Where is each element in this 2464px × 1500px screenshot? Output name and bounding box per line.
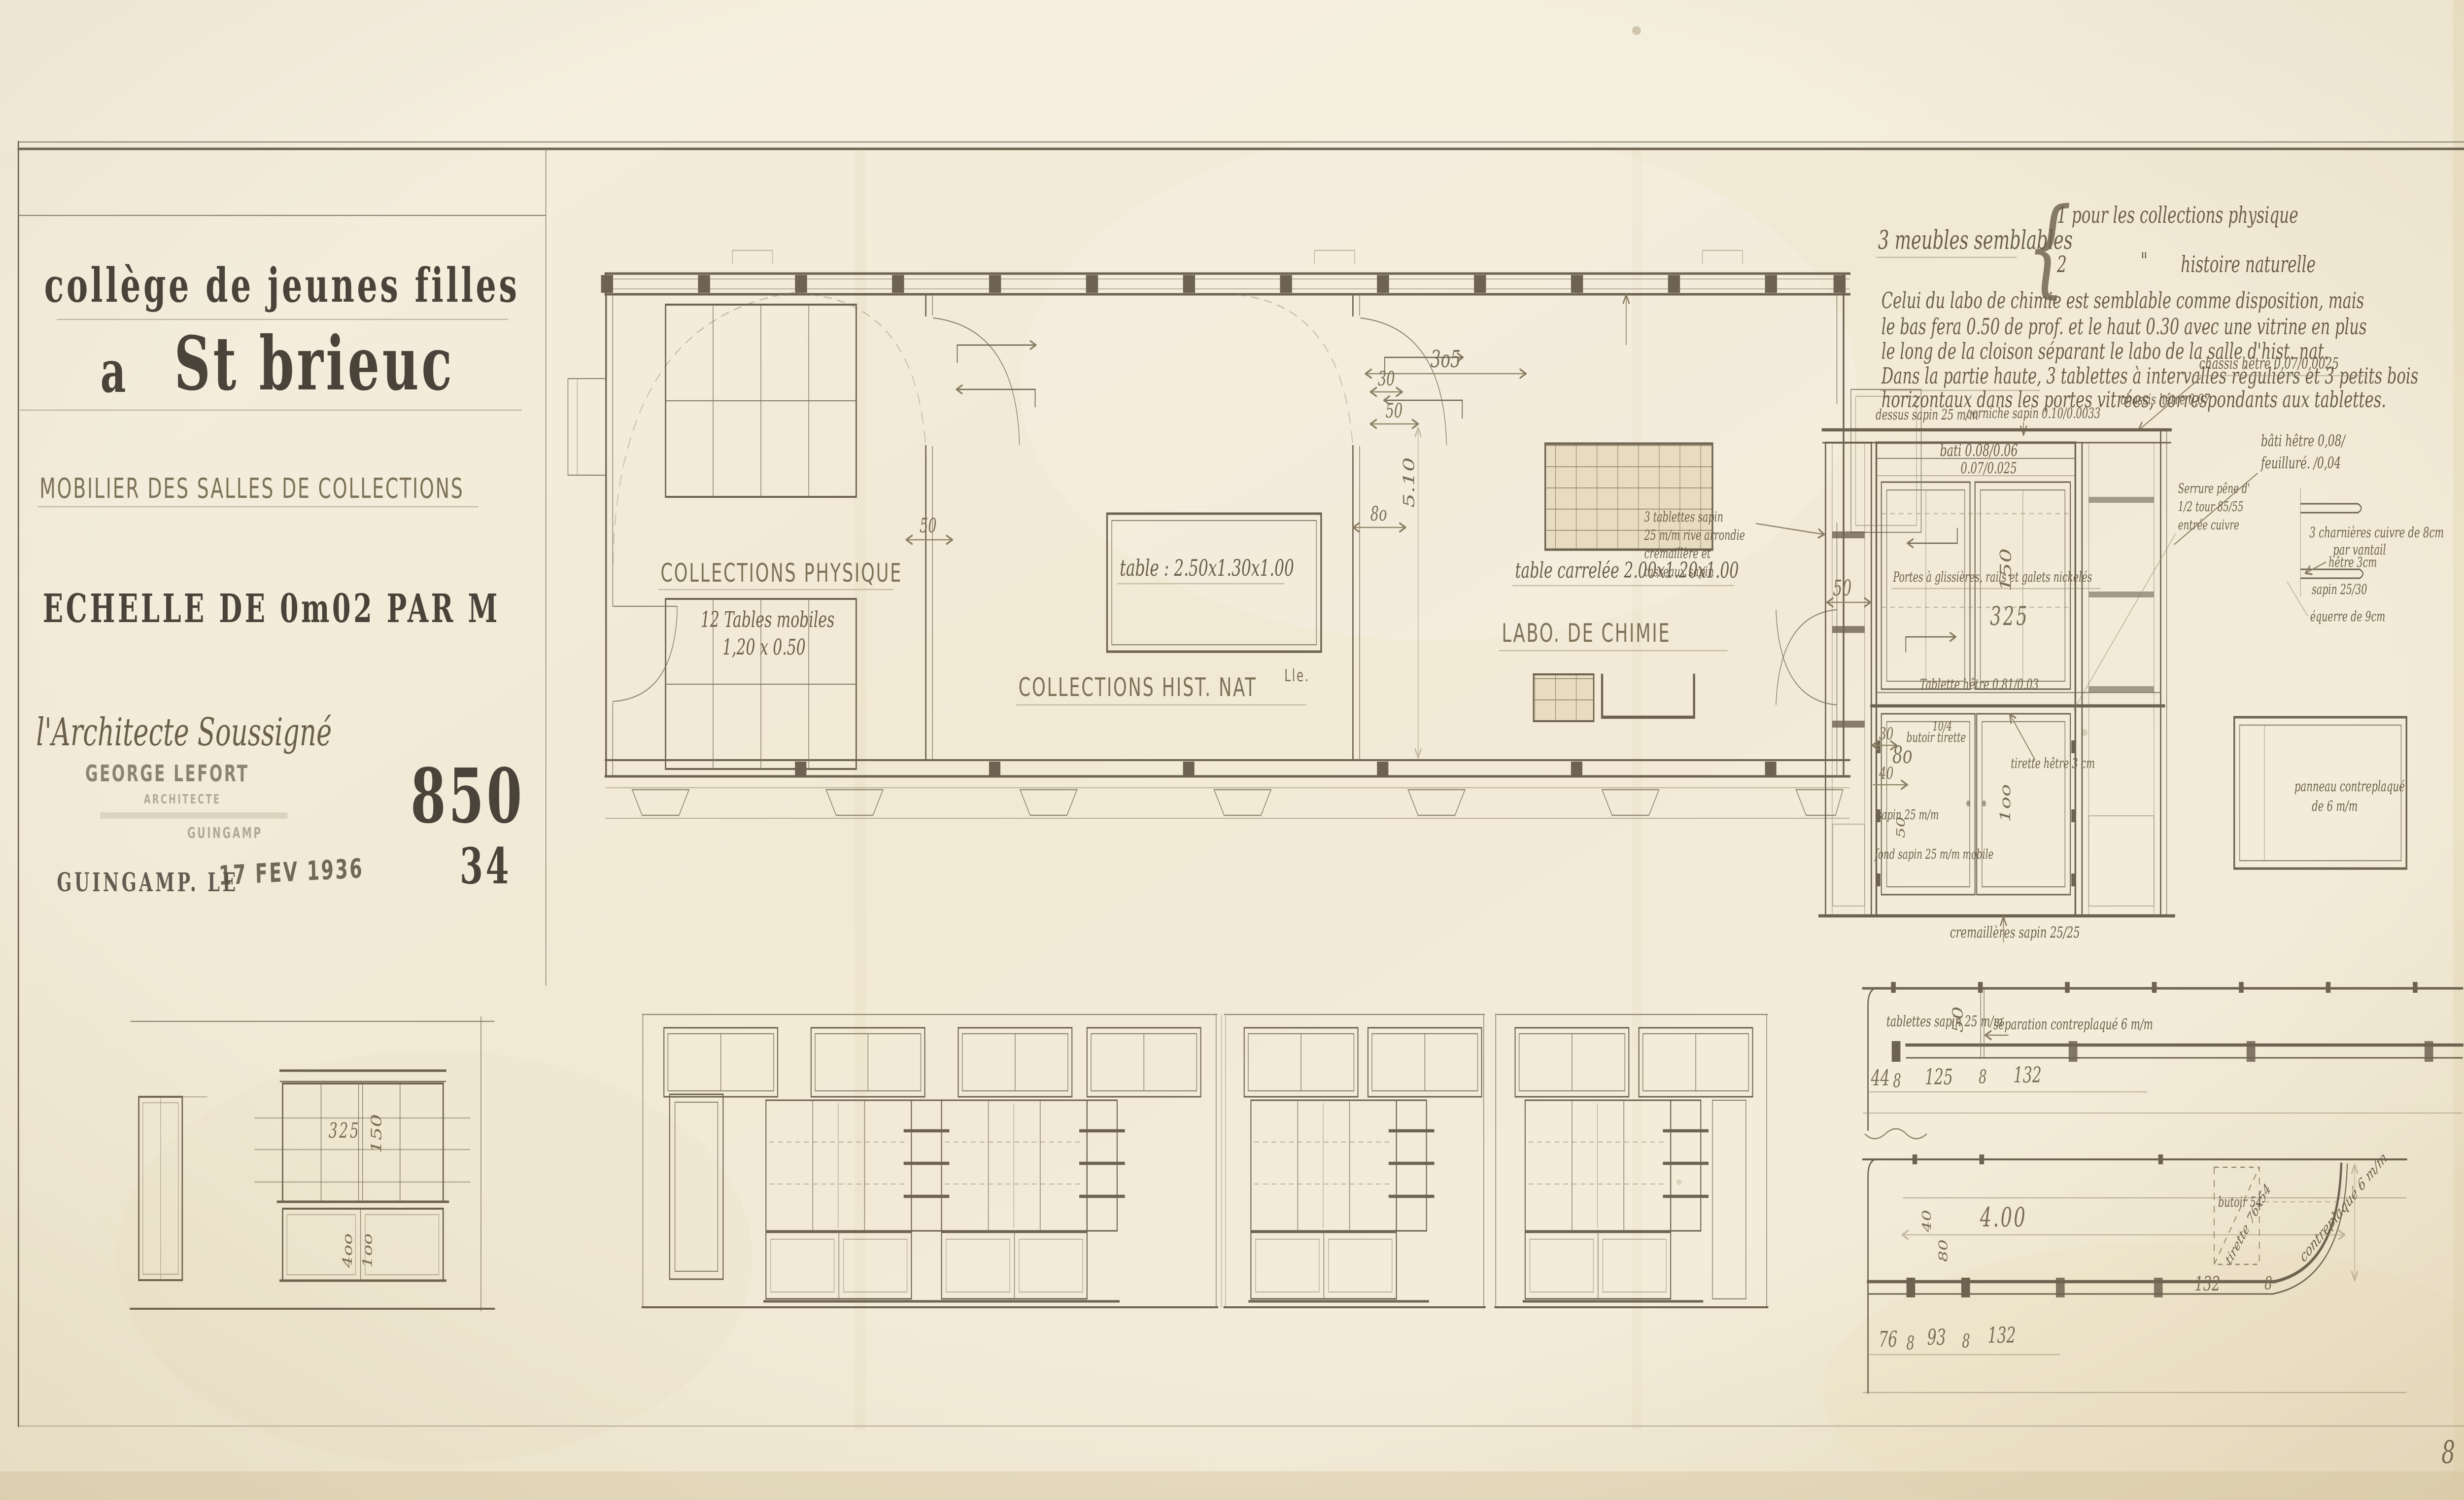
dim-8b: 8 (1979, 1066, 1986, 1088)
room2-label-superscript: Lle. (1284, 665, 1310, 685)
dossier-number: 850 (411, 752, 525, 840)
notes-item2-text: histoire naturelle (2181, 252, 2316, 278)
note-cremailleres: cremaillères sapin 25/25 (1950, 924, 2080, 942)
dim-100: 1oo (1998, 784, 2014, 822)
dim-el-400: 4oo (340, 1233, 355, 1268)
notes-item1: 1 pour les collections physique (2057, 203, 2298, 229)
note-tablette-hetre: Tablette hêtre 0.81/0.03 (1920, 676, 2039, 693)
dim-8c: 8 (2264, 1273, 2272, 1294)
drawing-subtitle: MOBILIER DES SALLES DE COLLECTIONS (39, 473, 464, 505)
dossier-subnumber: 34 (460, 838, 512, 896)
dim-base-80: 8o (1892, 741, 1912, 769)
dim-8a: 8 (1893, 1070, 1901, 1092)
dim-305: 3o5 (1431, 346, 1461, 373)
dim-125: 125 (1925, 1064, 1953, 1089)
dim-132: 132 (2014, 1062, 2042, 1087)
dim-base-80: 80 (1936, 1239, 1951, 1262)
dim-base-40: 40 (1879, 763, 1893, 783)
notes-item2-ditto: " (2141, 248, 2148, 275)
note-chassis-b: chassis hêtre 0,07/0,0025 (2199, 355, 2339, 373)
dim-30: 30 (1378, 368, 1395, 391)
note-sapin-25: sapin 25 m/m (1877, 808, 1939, 823)
drawing-sheet: collège de jeunes filles a St brieuc MOB… (0, 0, 2464, 1500)
dim-col-50: 50 (1833, 575, 1851, 600)
note-panneau-l2: de 6 m/m (2312, 798, 2358, 814)
dim-132b: 132 (2195, 1273, 2221, 1296)
page-number: 8 (2441, 1433, 2455, 1470)
dim-8a2: 8 (1907, 1332, 1915, 1354)
note-rail-2: 0.07/0.025 (1961, 459, 2017, 477)
note-3-tablettes-l4: tasseaux sapin (1644, 563, 1714, 580)
notes-item2-number: 2 (2056, 252, 2067, 278)
stamp-city: GUINGAMP (187, 825, 263, 842)
note-serrure-l2: 1/2 tour 85/55 (2178, 500, 2244, 515)
note-equerre: équerre de 9cm (2310, 608, 2385, 625)
note-3-tablettes-l3: cremaillère et (1644, 545, 1711, 561)
dim-el-150: 150 (369, 1114, 385, 1153)
dim-132a: 132 (1988, 1323, 2016, 1348)
scale-note: ECHELLE DE 0m02 PAR M (43, 586, 500, 632)
dim-325: 325 (1990, 602, 2029, 631)
dim-el-325: 325 (329, 1119, 361, 1143)
room1-note-line2: 1,20 x 0.50 (722, 634, 806, 660)
dim-80: 8o (1370, 503, 1387, 526)
note-separation: séparation contreplaqué 6 m/m (1993, 1016, 2153, 1033)
note-serrure-l1: Serrure pêne d' (2178, 482, 2250, 496)
project-title-line2-prefix: a (101, 337, 129, 406)
stamp-architect-name: GEORGE LEFORT (85, 761, 249, 787)
note-bati-hetre-1: bâti hêtre 0,08/ (2261, 432, 2346, 450)
dim-400: 4.00 (1980, 1202, 2027, 1233)
dim-50: 50 (1386, 400, 1403, 423)
dim-44: 44 (1871, 1065, 1890, 1090)
notes-paragraph-line1: Celui du labo de chimie est semblable co… (1882, 288, 2364, 314)
project-title-line2: St brieuc (174, 321, 454, 408)
project-title-line1: collège de jeunes filles (44, 258, 520, 313)
note-3-tablettes-l2: 25 m/m rive arrondie (1644, 527, 1745, 543)
note-rail-1: bati 0.08/0.06 (1940, 441, 2018, 460)
room1-note-line1: 12 Tables mobiles (701, 607, 835, 632)
dim-93: 93 (1927, 1325, 1946, 1350)
dim-8b2: 8 (1962, 1330, 1970, 1352)
stamp-address-blur (101, 812, 288, 819)
note-chassis-a: chassis hêtre 0,07 (2121, 391, 2210, 408)
dim-base-50: 50 (1894, 817, 1908, 838)
stamp-architect-title: ARCHITECTE (144, 792, 221, 807)
architect-script-line: l'Architecte Soussigné (36, 709, 332, 754)
dim-510: 5.10 (1401, 457, 1418, 508)
dim-150: 150 (1997, 548, 2015, 592)
note-bati-hetre-2: feuilluré. /0,04 (2260, 454, 2341, 472)
dim-50b: 50 (920, 515, 937, 538)
note-hetre-3cm: hêtre 3cm (2328, 554, 2377, 570)
note-panneau-l1: panneau contreplaqué (2294, 778, 2405, 795)
dim-el-100: 1oo (360, 1233, 375, 1268)
dim-counter-50: 50 (1950, 1007, 1966, 1033)
note-dessus-sapin: dessus sapin 25 m/m (1876, 406, 1978, 423)
note-tablettes-sapin: tablettes sapin 25 m/m (1886, 1013, 2003, 1030)
place-date-line: GUINGAMP. LE (57, 868, 238, 898)
note-serrure-l3: entrée cuivre (2178, 518, 2239, 533)
note-corniche-sapin: corniche sapin 0.10/0.0033 (1967, 405, 2101, 421)
room3-label: LABO. DE CHIMIE (1502, 619, 1671, 648)
dim-76: 76 (1879, 1326, 1897, 1352)
note-charnieres-l1: 3 charnières cuivre de 8cm (2309, 524, 2444, 541)
note-3-tablettes-l1: 3 tablettes sapin (1644, 509, 1723, 525)
dim-base-40: 40 (1920, 1210, 1934, 1233)
note-sapin-2530: sapin 25/30 (2312, 581, 2367, 597)
room2-label: COLLECTIONS HIST. NAT (1019, 673, 1257, 702)
dim-base-30: 30 (1879, 724, 1893, 743)
notes-paragraph-line2: le bas fera 0.50 de prof. et le haut 0.3… (1882, 314, 2367, 340)
room2-table-note: table : 2.50x1.30x1.00 (1120, 556, 1294, 582)
note-portes-glissieres: Portes à glissières, rails et galets nic… (1893, 569, 2092, 585)
dim-10-4: 10/4 (1933, 719, 1952, 734)
note-fond-sapin: fond sapin 25 m/m mobile (1874, 847, 1994, 862)
room1-label: COLLECTIONS PHYSIQUE (660, 558, 902, 588)
